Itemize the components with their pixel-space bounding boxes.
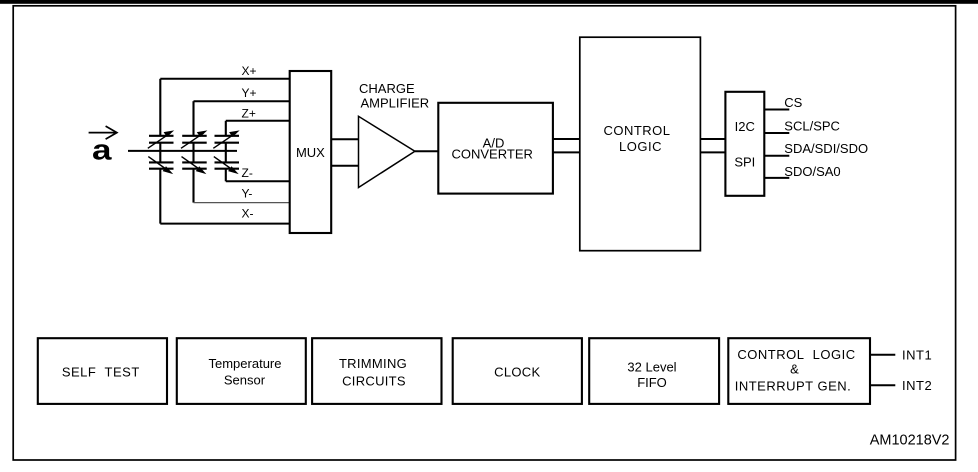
svg-text:SPI: SPI (734, 155, 755, 170)
svg-text:SCL/SPC: SCL/SPC (784, 118, 840, 133)
svg-text:INT2: INT2 (902, 378, 932, 393)
svg-text:CIRCUITS: CIRCUITS (342, 373, 406, 388)
svg-text:CONVERTER: CONVERTER (452, 146, 533, 161)
svg-text:TRIMMING: TRIMMING (339, 356, 407, 371)
svg-text:Y+: Y+ (242, 86, 257, 100)
svg-text:SELF TEST: SELF TEST (62, 365, 140, 380)
svg-text:SDA/SDI/SDO: SDA/SDI/SDO (784, 141, 868, 156)
svg-text:AM10218V2: AM10218V2 (870, 432, 950, 448)
svg-text:Z+: Z+ (242, 106, 256, 120)
svg-text:CHARGE: CHARGE (359, 81, 415, 96)
svg-text:AMPLIFIER: AMPLIFIER (361, 96, 430, 111)
svg-text:&: & (790, 362, 799, 377)
svg-text:32 Level: 32 Level (627, 360, 676, 375)
svg-text:Y-: Y- (242, 187, 253, 201)
svg-text:MUX: MUX (296, 145, 325, 160)
svg-text:INT1: INT1 (902, 347, 932, 362)
svg-text:CONTROL: CONTROL (603, 123, 670, 138)
svg-text:Z-: Z- (242, 166, 253, 180)
svg-text:Sensor: Sensor (224, 373, 266, 388)
svg-text:LOGIC: LOGIC (619, 139, 662, 154)
svg-text:CLOCK: CLOCK (494, 365, 540, 380)
svg-text:INTERRUPT GEN.: INTERRUPT GEN. (735, 379, 852, 394)
svg-text:a: a (92, 135, 113, 167)
svg-text:CS: CS (784, 95, 802, 110)
svg-text:X+: X+ (242, 64, 257, 78)
svg-text:I2C: I2C (735, 119, 755, 134)
svg-text:FIFO: FIFO (637, 375, 667, 390)
svg-text:Temperature: Temperature (209, 356, 282, 371)
svg-text:X-: X- (242, 207, 254, 221)
svg-text:SDO/SA0: SDO/SA0 (784, 164, 840, 179)
svg-text:CONTROL LOGIC: CONTROL LOGIC (737, 347, 855, 362)
